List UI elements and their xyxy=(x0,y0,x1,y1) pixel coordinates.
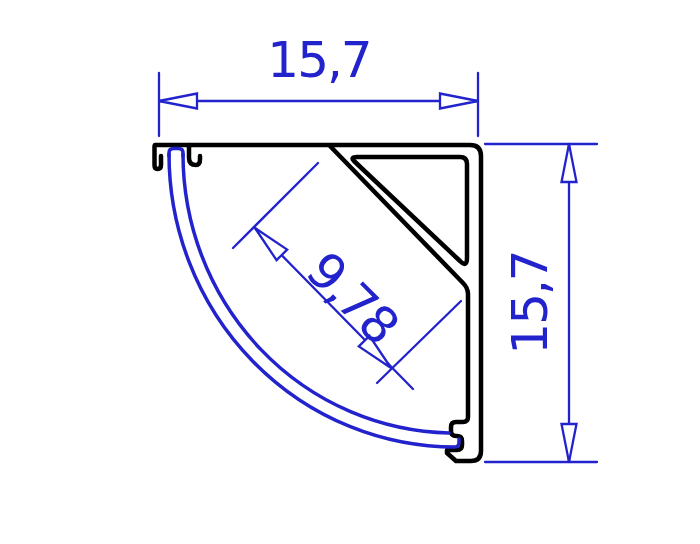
height-dimension: 15,7 xyxy=(485,144,597,462)
width-dimension: 15,7 xyxy=(159,31,478,136)
width-arrow-left-icon xyxy=(159,94,197,109)
height-dim-label: 15,7 xyxy=(501,251,559,354)
drawing-canvas: 15,7 15,7 9,78 xyxy=(0,0,700,544)
height-arrow-bottom-icon xyxy=(562,424,577,462)
height-arrow-top-icon xyxy=(562,144,577,182)
diffuser-top-tab xyxy=(169,149,183,157)
profile-corner-chamber xyxy=(353,157,467,264)
diagonal-dim-label: 9,78 xyxy=(295,241,409,355)
diagonal-ext-line-upper xyxy=(233,163,318,248)
width-dim-label: 15,7 xyxy=(267,31,370,89)
diagonal-arrow-upper-icon xyxy=(250,223,287,260)
width-arrow-right-icon xyxy=(440,94,478,109)
profile-j-hook xyxy=(189,145,200,165)
profile-left-lip xyxy=(155,146,162,169)
